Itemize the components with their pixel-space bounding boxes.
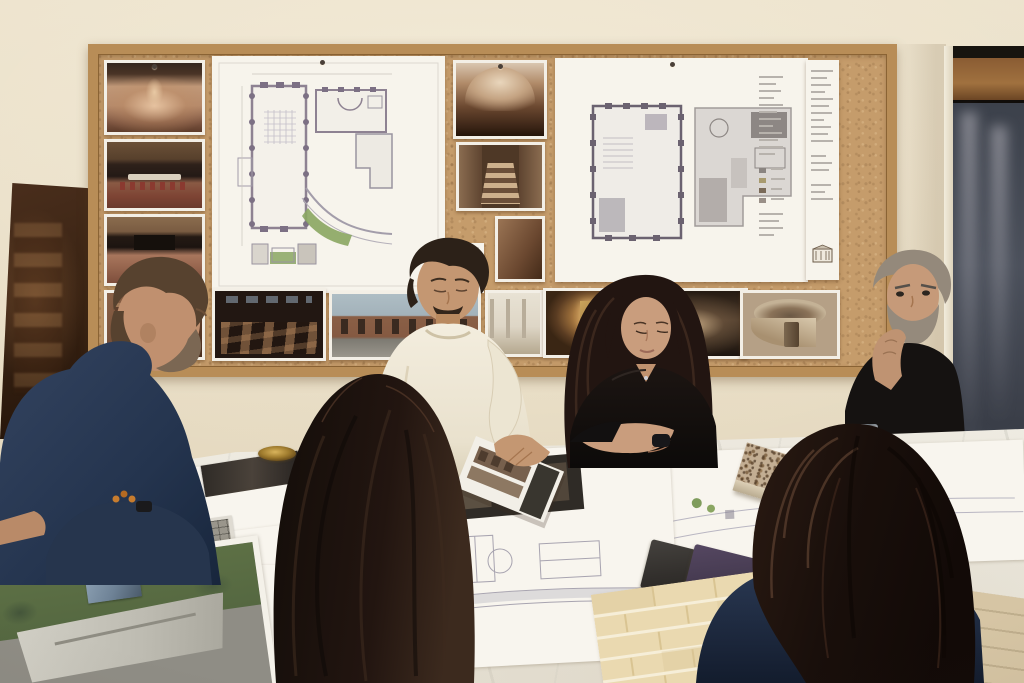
ceiling-slits <box>226 296 312 303</box>
man-left <box>0 253 238 585</box>
push-pin <box>320 60 325 65</box>
stair-wall <box>519 145 542 208</box>
floor-plan-sheet-right <box>555 58 808 282</box>
render-corridor <box>453 60 547 139</box>
watch <box>136 501 152 512</box>
stair-wall <box>459 145 482 208</box>
render-table <box>128 174 181 181</box>
man-right <box>845 246 980 438</box>
foreground-person-right <box>688 418 1024 683</box>
render-warm-hall <box>104 60 205 135</box>
render-stage <box>134 235 176 250</box>
stair-steps <box>481 163 521 205</box>
push-pin <box>152 64 157 69</box>
door-top-rail <box>953 46 1024 58</box>
ear <box>140 323 156 343</box>
spiral-column <box>784 322 799 347</box>
render-spiral <box>740 290 840 359</box>
render-chairs <box>120 182 188 190</box>
watch <box>652 434 670 447</box>
photo-stage <box>0 0 1024 683</box>
notes-strip-drawing <box>806 60 839 280</box>
cork-reflection-band <box>953 58 1024 103</box>
notes-strip-sheet <box>806 60 839 280</box>
render-meeting-room <box>104 139 205 211</box>
floor-plan-drawing <box>555 58 808 282</box>
push-pin <box>498 64 503 69</box>
foreground-person-center <box>266 346 488 683</box>
wavy-hair <box>752 424 975 683</box>
corridor-arch <box>465 67 535 111</box>
render-glow <box>143 77 166 115</box>
face <box>621 297 671 359</box>
push-pin <box>670 62 675 67</box>
necklace-pendant <box>644 376 648 380</box>
curtain-reflection <box>991 126 1007 426</box>
render-staircase <box>456 142 545 211</box>
